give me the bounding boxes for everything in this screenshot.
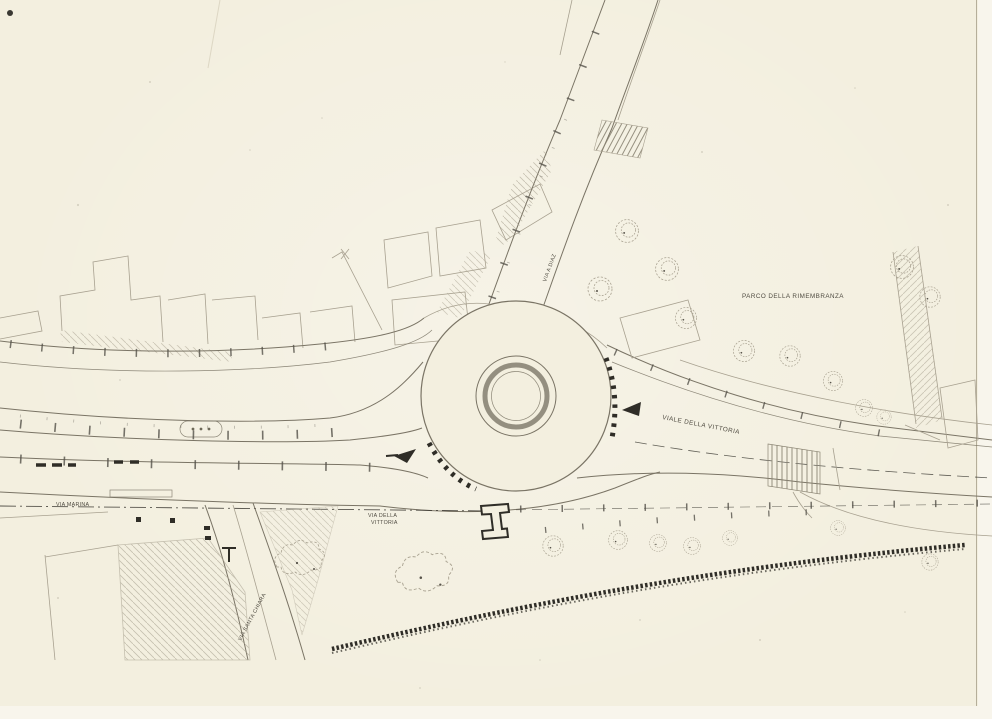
speck <box>701 151 703 153</box>
plan-drawing: PARCO DELLA RIMEMBRANZA VIALE DELLA VITT… <box>0 0 992 719</box>
building-outline <box>384 232 432 288</box>
survey-square <box>170 518 175 523</box>
scan-blemish <box>7 10 13 16</box>
tree-symbol <box>656 258 679 281</box>
tree-symbol <box>723 531 738 546</box>
tree-symbol <box>684 538 701 555</box>
tree-symbol <box>616 220 639 243</box>
label-vittoria: VITTORIA <box>371 520 398 526</box>
label-via-della: VIA DELLA <box>368 513 397 519</box>
roundabout <box>386 301 641 491</box>
tree-symbol <box>823 371 842 390</box>
direction-arrow-east <box>622 402 641 416</box>
tree-symbol <box>609 531 628 550</box>
west-road-line <box>0 362 423 421</box>
tree-symbol <box>650 535 667 552</box>
survey-tick-row <box>615 352 900 437</box>
parcel-lines <box>0 512 118 660</box>
speck <box>947 204 949 206</box>
building-outline <box>168 294 208 344</box>
road-southwest <box>0 490 338 660</box>
roundabout-outer-circle <box>421 301 611 491</box>
speck <box>57 597 59 599</box>
fence-line <box>332 545 965 653</box>
boundary-dash <box>500 504 992 510</box>
tree-symbol <box>831 521 846 536</box>
north-sidewalk-line <box>618 0 660 120</box>
sidewalk-line-south <box>800 492 992 536</box>
speck <box>759 639 761 641</box>
slope-hatch <box>893 246 942 428</box>
speck <box>639 619 641 621</box>
bus-bay-dot <box>200 428 203 431</box>
survey-square <box>204 526 210 530</box>
speck <box>249 149 251 151</box>
building-outline <box>262 313 303 348</box>
building-outline <box>212 296 258 340</box>
scanned-site-plan: PARCO DELLA RIMEMBRANZA VIALE DELLA VITT… <box>0 0 992 719</box>
parcel-line <box>332 252 382 330</box>
west-road-line <box>0 428 422 442</box>
north-road-edge-west <box>489 0 605 304</box>
tree-symbol <box>922 554 938 570</box>
tree-symbol <box>733 340 754 361</box>
survey-tick-row <box>520 503 985 509</box>
scan-bottom-edge <box>0 706 992 719</box>
parcel-outline <box>0 311 42 339</box>
speck <box>904 611 906 613</box>
tree-symbol <box>588 277 612 301</box>
building-hatched <box>620 300 700 358</box>
survey-T-mark <box>222 548 236 562</box>
speck <box>504 61 505 62</box>
section-marker-I <box>481 504 509 539</box>
scan-right-edge <box>978 0 992 719</box>
fence-shadow <box>332 549 965 653</box>
label-via-a-diaz: VIA A DIAZ <box>542 253 558 283</box>
section-marker-glyph <box>481 504 509 539</box>
zebra-crossing <box>768 444 820 494</box>
direction-arrow-tail <box>386 455 398 456</box>
speck <box>539 659 541 661</box>
north-parcel-line <box>560 0 572 55</box>
paper-crease <box>208 0 220 68</box>
survey-square <box>136 517 141 522</box>
speck <box>119 379 121 381</box>
tree-symbol <box>543 536 563 556</box>
survey-tick-row <box>545 512 830 530</box>
speck <box>419 687 421 689</box>
building-outline <box>60 256 163 342</box>
survey-square <box>205 536 211 540</box>
label-parco-della-rimembranza: PARCO DELLA RIMEMBRANZA <box>742 293 844 300</box>
hatched-wedge <box>260 506 338 635</box>
speck <box>321 117 323 119</box>
shelter-outline <box>110 490 172 497</box>
north-crossing-hatch <box>594 120 648 158</box>
speck <box>149 81 151 83</box>
label-viale-della-vittoria: VIALE DELLA VITTORIA <box>662 414 741 436</box>
building-outline <box>310 306 355 342</box>
bus-bay-dot <box>192 428 195 431</box>
tree-symbol <box>877 410 891 424</box>
fence-main <box>332 545 965 649</box>
tree-symbol <box>780 346 800 366</box>
bush-symbol <box>395 552 452 591</box>
survey-microtext-row <box>20 416 340 427</box>
label-via-marina: VIA MARINA <box>56 502 89 508</box>
hatched-block <box>118 538 250 660</box>
survey-tick-row <box>492 5 606 298</box>
speck <box>77 204 79 206</box>
speck <box>854 87 856 89</box>
